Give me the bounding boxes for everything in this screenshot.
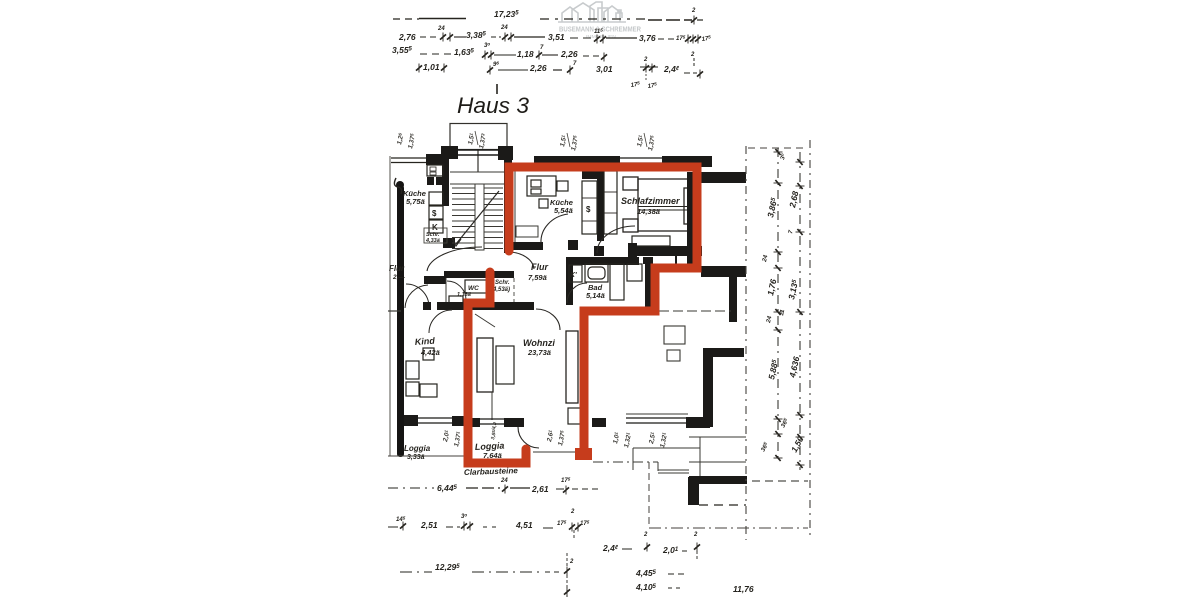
svg-text:Loggia: Loggia — [404, 444, 431, 453]
svg-text:K': K' — [570, 272, 577, 279]
svg-text:3,76: 3,76 — [639, 33, 656, 43]
svg-text:5,14ä: 5,14ä — [586, 291, 605, 300]
svg-text:2: 2 — [691, 8, 696, 14]
svg-text:2: 2 — [570, 509, 575, 515]
svg-text:23,73ä: 23,73ä — [527, 348, 551, 357]
svg-text:2: 2 — [643, 532, 648, 538]
svg-text:2: 2 — [643, 57, 648, 63]
svg-text:Schr.: Schr. — [495, 280, 510, 286]
svg-text:3,51: 3,51 — [548, 32, 565, 42]
svg-text:Wohnzi: Wohnzi — [523, 338, 555, 348]
svg-text:2: 2 — [693, 532, 698, 538]
svg-text:24: 24 — [500, 478, 508, 484]
svg-text:Schlafzimmer: Schlafzimmer — [621, 196, 680, 206]
svg-text:2,—: 2,— — [392, 274, 405, 281]
svg-text:7,59ä: 7,59ä — [528, 273, 547, 282]
svg-text:3,33ä: 3,33ä — [407, 454, 425, 461]
svg-text:4,51: 4,51 — [515, 520, 533, 530]
svg-text:1,01: 1,01 — [423, 62, 440, 72]
svg-text:2,26: 2,26 — [529, 63, 547, 73]
svg-text:24: 24 — [437, 26, 445, 32]
svg-text:5,75ä: 5,75ä — [406, 197, 425, 206]
svg-text:4,53ä): 4,53ä) — [492, 287, 510, 293]
svg-text:1,18: 1,18 — [517, 49, 534, 59]
svg-text:$: $ — [432, 209, 437, 218]
svg-text:Haus 3: Haus 3 — [457, 93, 530, 118]
svg-text:14,38ä: 14,38ä — [637, 207, 660, 216]
svg-text:3,01: 3,01 — [596, 64, 613, 74]
svg-text:2,51: 2,51 — [420, 520, 438, 530]
svg-text:WC: WC — [468, 285, 479, 292]
svg-text:K: K — [432, 223, 438, 232]
svg-text:5,54ä: 5,54ä — [554, 206, 573, 215]
svg-text:24: 24 — [500, 25, 508, 31]
svg-text:2,76: 2,76 — [398, 32, 416, 42]
svg-text:2: 2 — [569, 559, 574, 565]
svg-text:2,26: 2,26 — [560, 49, 578, 59]
svg-text:4,33ä: 4,33ä — [425, 238, 440, 244]
svg-text:2,61: 2,61 — [531, 484, 549, 494]
svg-text:1,18ä: 1,18ä — [457, 292, 471, 298]
svg-text:Clarbausteine: Clarbausteine — [464, 466, 519, 477]
svg-text:Kind: Kind — [414, 336, 435, 347]
svg-text:11,76: 11,76 — [733, 584, 754, 594]
svg-text:$: $ — [586, 205, 591, 214]
svg-text:2: 2 — [690, 52, 695, 58]
svg-text:Flur: Flur — [389, 264, 405, 273]
